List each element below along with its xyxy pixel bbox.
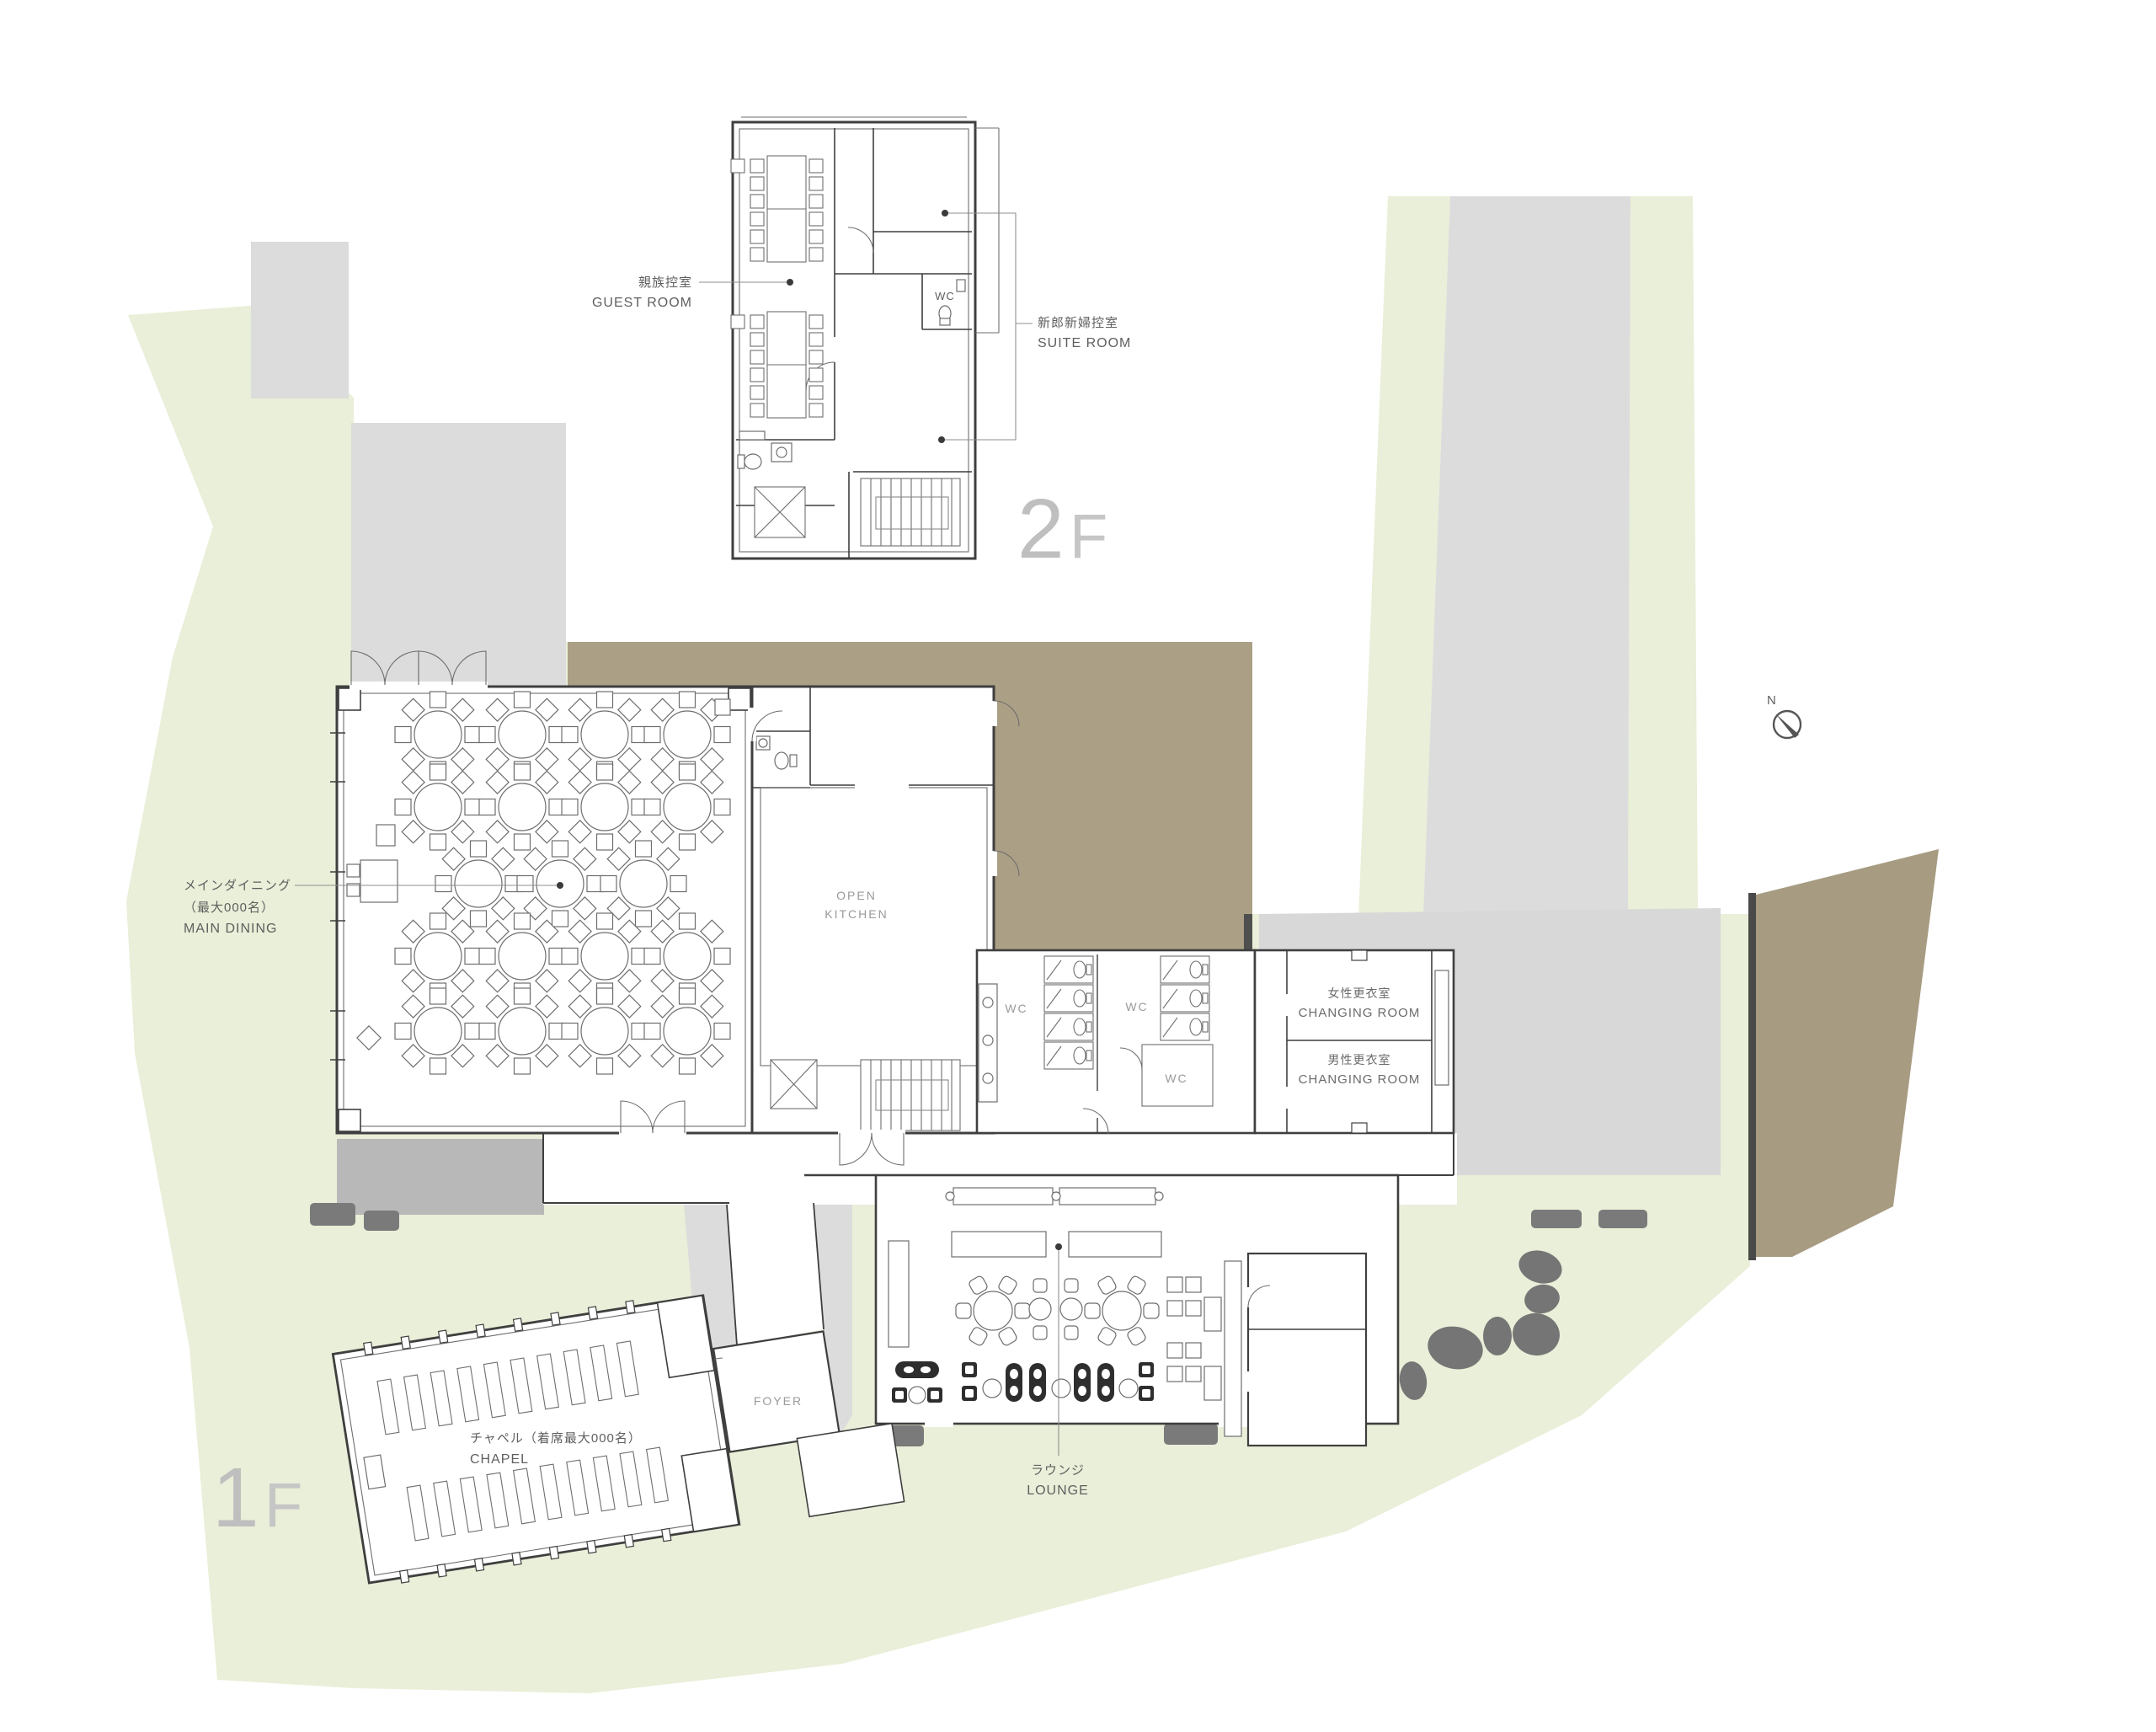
wc1-label: WC xyxy=(1005,1002,1027,1015)
main-dining-label-en: MAIN DINING xyxy=(184,922,277,936)
suite-room-label-ja: 新郎新婦控室 xyxy=(1038,316,1118,330)
chapel-label-en: CHAPEL xyxy=(470,1452,529,1467)
women-changing-label-ja: 女性更衣室 xyxy=(1328,986,1391,1000)
men-changing-label-en: CHANGING ROOM xyxy=(1299,1072,1421,1087)
elevator-1f xyxy=(771,1060,817,1109)
stairs-1f xyxy=(861,1060,960,1131)
floor1-tag-letter: F xyxy=(264,1470,302,1540)
open-kitchen-label-1: OPEN xyxy=(836,889,877,902)
floor-plan-canvas: OPEN KITCHEN xyxy=(0,0,2156,1732)
site-plan-drawing: OPEN KITCHEN xyxy=(0,0,2156,1732)
north-compass-icon: N xyxy=(1767,693,1801,738)
main-dining-label-ja: メインダイニング xyxy=(184,879,291,893)
wc-sinks xyxy=(979,984,997,1102)
lounge xyxy=(804,1175,1398,1456)
elevator-2f xyxy=(755,487,805,537)
wall-stub xyxy=(1244,914,1252,950)
wc2-label: WC xyxy=(1125,1000,1148,1013)
floor2-tag-number: 2 xyxy=(1017,482,1066,576)
paving-patch-upper xyxy=(251,242,349,398)
paving-patch-north-terrace xyxy=(351,423,566,687)
wc3-label: WC xyxy=(1165,1072,1187,1085)
gravel-road xyxy=(1423,196,1630,915)
stairs-2f xyxy=(861,478,960,546)
floor2-wc-label: WC xyxy=(935,290,955,302)
toilet-stalls-bank2 xyxy=(1161,956,1209,1040)
guest-room-label-en: GUEST ROOM xyxy=(592,296,692,310)
north-label: N xyxy=(1767,693,1776,708)
foyer-label: FOYER xyxy=(754,1394,803,1408)
foyer-porch xyxy=(797,1424,904,1517)
lounge-label-ja: ラウンジ xyxy=(1031,1463,1085,1478)
changing-rooms-block: 女性更衣室 CHANGING ROOM 男性更衣室 CHANGING ROOM xyxy=(1255,950,1454,1133)
lounge-table-long-2 xyxy=(1069,1232,1161,1257)
pass-window-gap xyxy=(855,783,909,793)
main-dining-label-capacity: （最大000名） xyxy=(184,901,275,915)
open-kitchen-label-2: KITCHEN xyxy=(825,907,888,921)
suite-room-label-en: SUITE ROOM xyxy=(1038,336,1131,350)
green-strip-right xyxy=(1628,196,1698,911)
suite-extent-bracket xyxy=(975,128,999,333)
lounge-annex-rooms xyxy=(1246,1254,1366,1446)
wc-block: WC WC WC xyxy=(977,950,1255,1134)
main-dining-hall xyxy=(330,651,752,1136)
lounge-label-en: LOUNGE xyxy=(1027,1483,1089,1498)
floor2-tag-letter: F xyxy=(1070,501,1107,571)
chapel-label-ja: チャペル（着席最大000名） xyxy=(470,1431,642,1446)
site-wall-east xyxy=(1748,893,1756,1260)
terrace-gray-south xyxy=(337,1139,544,1215)
lounge-table-long-1 xyxy=(952,1232,1046,1257)
guest-room-label-ja: 親族控室 xyxy=(638,275,692,290)
women-changing-label-en: CHANGING ROOM xyxy=(1299,1006,1421,1020)
terrace-brown-east xyxy=(1756,849,1939,1257)
bar-counter xyxy=(889,1241,909,1347)
men-changing-label-ja: 男性更衣室 xyxy=(1328,1053,1391,1066)
floor1-tag-number: 1 xyxy=(212,1451,261,1545)
foyer-room xyxy=(713,1331,840,1451)
